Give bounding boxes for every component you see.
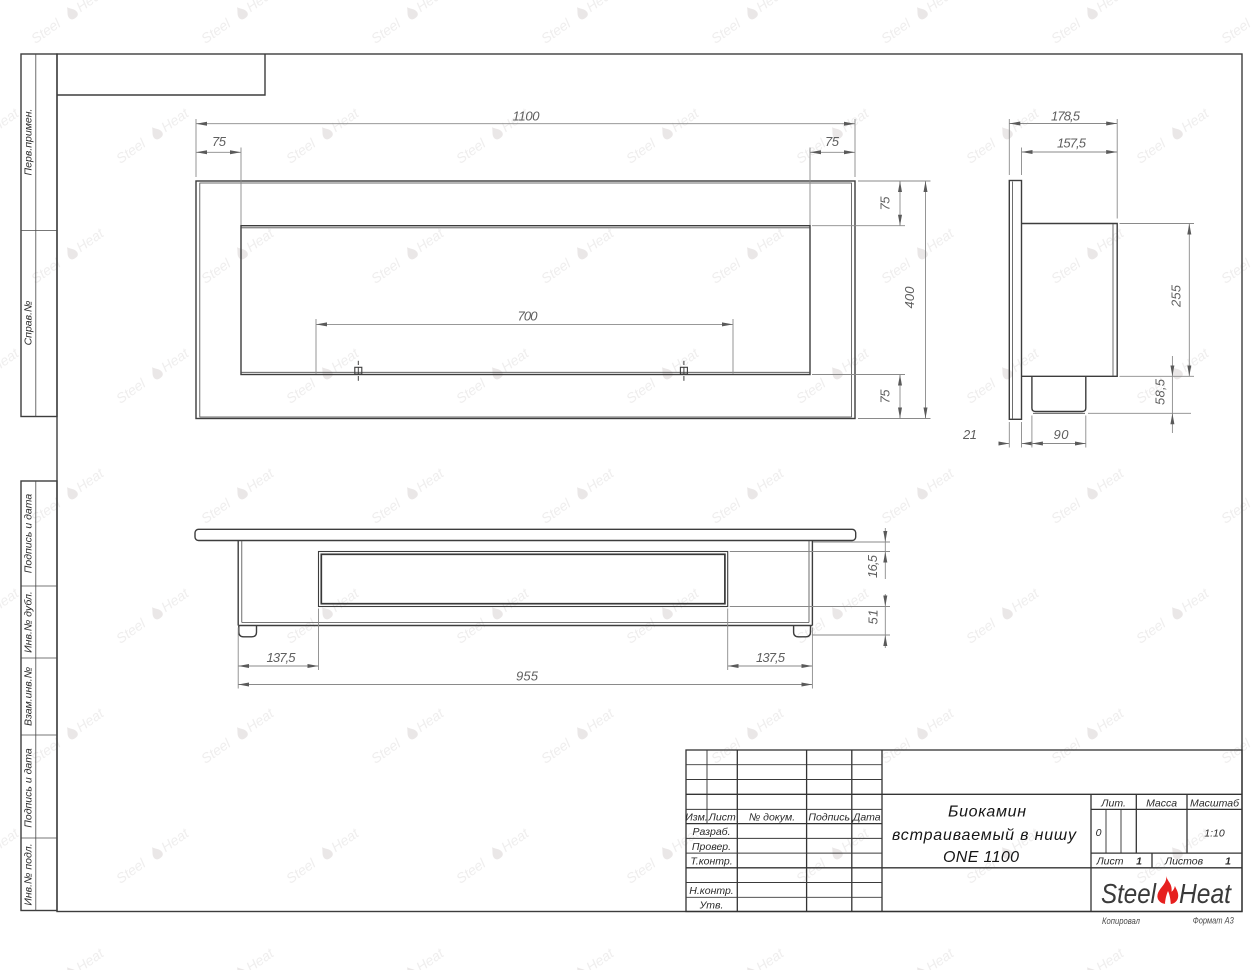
svg-text:1100: 1100 bbox=[513, 109, 541, 124]
svg-text:Heat: Heat bbox=[1179, 878, 1232, 909]
svg-text:Перв.примен.: Перв.примен. bbox=[23, 109, 35, 176]
svg-text:700: 700 bbox=[518, 309, 539, 324]
svg-text:Справ.№: Справ.№ bbox=[23, 301, 35, 346]
svg-text:Формат А3: Формат А3 bbox=[1193, 916, 1234, 926]
svg-text:137,5: 137,5 bbox=[756, 650, 786, 665]
svg-text:Листов: Листов bbox=[1164, 856, 1204, 868]
svg-text:90: 90 bbox=[1054, 427, 1070, 442]
svg-text:Подпись и дата: Подпись и дата bbox=[23, 494, 35, 574]
svg-text:157,5: 157,5 bbox=[1057, 136, 1087, 151]
svg-text:0: 0 bbox=[1096, 827, 1102, 839]
svg-text:255: 255 bbox=[1169, 284, 1184, 308]
svg-text:Н.контр.: Н.контр. bbox=[689, 885, 733, 897]
svg-text:Изм.: Изм. bbox=[685, 812, 707, 824]
svg-text:955: 955 bbox=[516, 669, 539, 684]
svg-text:Лист: Лист bbox=[708, 812, 736, 824]
svg-text:Масштаб: Масштаб bbox=[1190, 798, 1240, 810]
svg-text:Инв.№ подл.: Инв.№ подл. bbox=[23, 843, 35, 905]
svg-text:№ докум.: № докум. bbox=[749, 812, 795, 824]
svg-text:137,5: 137,5 bbox=[267, 650, 297, 665]
svg-text:Лист: Лист bbox=[1095, 856, 1123, 868]
svg-text:Масса: Масса bbox=[1146, 798, 1177, 810]
svg-text:1: 1 bbox=[1136, 856, 1142, 868]
svg-text:Подпись и дата: Подпись и дата bbox=[23, 748, 35, 828]
svg-text:1:10: 1:10 bbox=[1204, 828, 1225, 840]
svg-text:встраиваемый в нишу: встраиваемый в нишу bbox=[892, 827, 1077, 844]
svg-text:Дата: Дата bbox=[852, 812, 881, 824]
svg-text:1: 1 bbox=[1225, 856, 1231, 868]
svg-text:Взам.инв.№: Взам.инв.№ bbox=[23, 667, 35, 726]
svg-text:Копировал: Копировал bbox=[1102, 916, 1140, 926]
svg-text:Steel: Steel bbox=[1101, 878, 1157, 909]
svg-text:16,5: 16,5 bbox=[865, 554, 880, 578]
svg-text:75: 75 bbox=[878, 389, 893, 404]
svg-text:400: 400 bbox=[902, 286, 917, 309]
svg-text:ONE 1100: ONE 1100 bbox=[943, 849, 1019, 866]
svg-text:21: 21 bbox=[962, 427, 977, 442]
svg-text:Провер.: Провер. bbox=[692, 841, 731, 853]
svg-text:75: 75 bbox=[878, 196, 893, 211]
svg-text:Утв.: Утв. bbox=[699, 899, 724, 911]
svg-text:Биокамин: Биокамин bbox=[948, 804, 1026, 821]
svg-text:58,5: 58,5 bbox=[1153, 378, 1168, 405]
svg-text:Т.контр.: Т.контр. bbox=[690, 856, 732, 868]
svg-text:51: 51 bbox=[866, 610, 881, 625]
svg-text:75: 75 bbox=[212, 134, 227, 149]
svg-text:178,5: 178,5 bbox=[1051, 109, 1081, 124]
svg-text:75: 75 bbox=[825, 134, 840, 149]
svg-text:Инв.№ дубл.: Инв.№ дубл. bbox=[23, 591, 35, 653]
svg-text:Подпись: Подпись bbox=[808, 812, 850, 824]
svg-text:Лит.: Лит. bbox=[1100, 798, 1126, 810]
svg-text:Разраб.: Разраб. bbox=[693, 826, 731, 838]
